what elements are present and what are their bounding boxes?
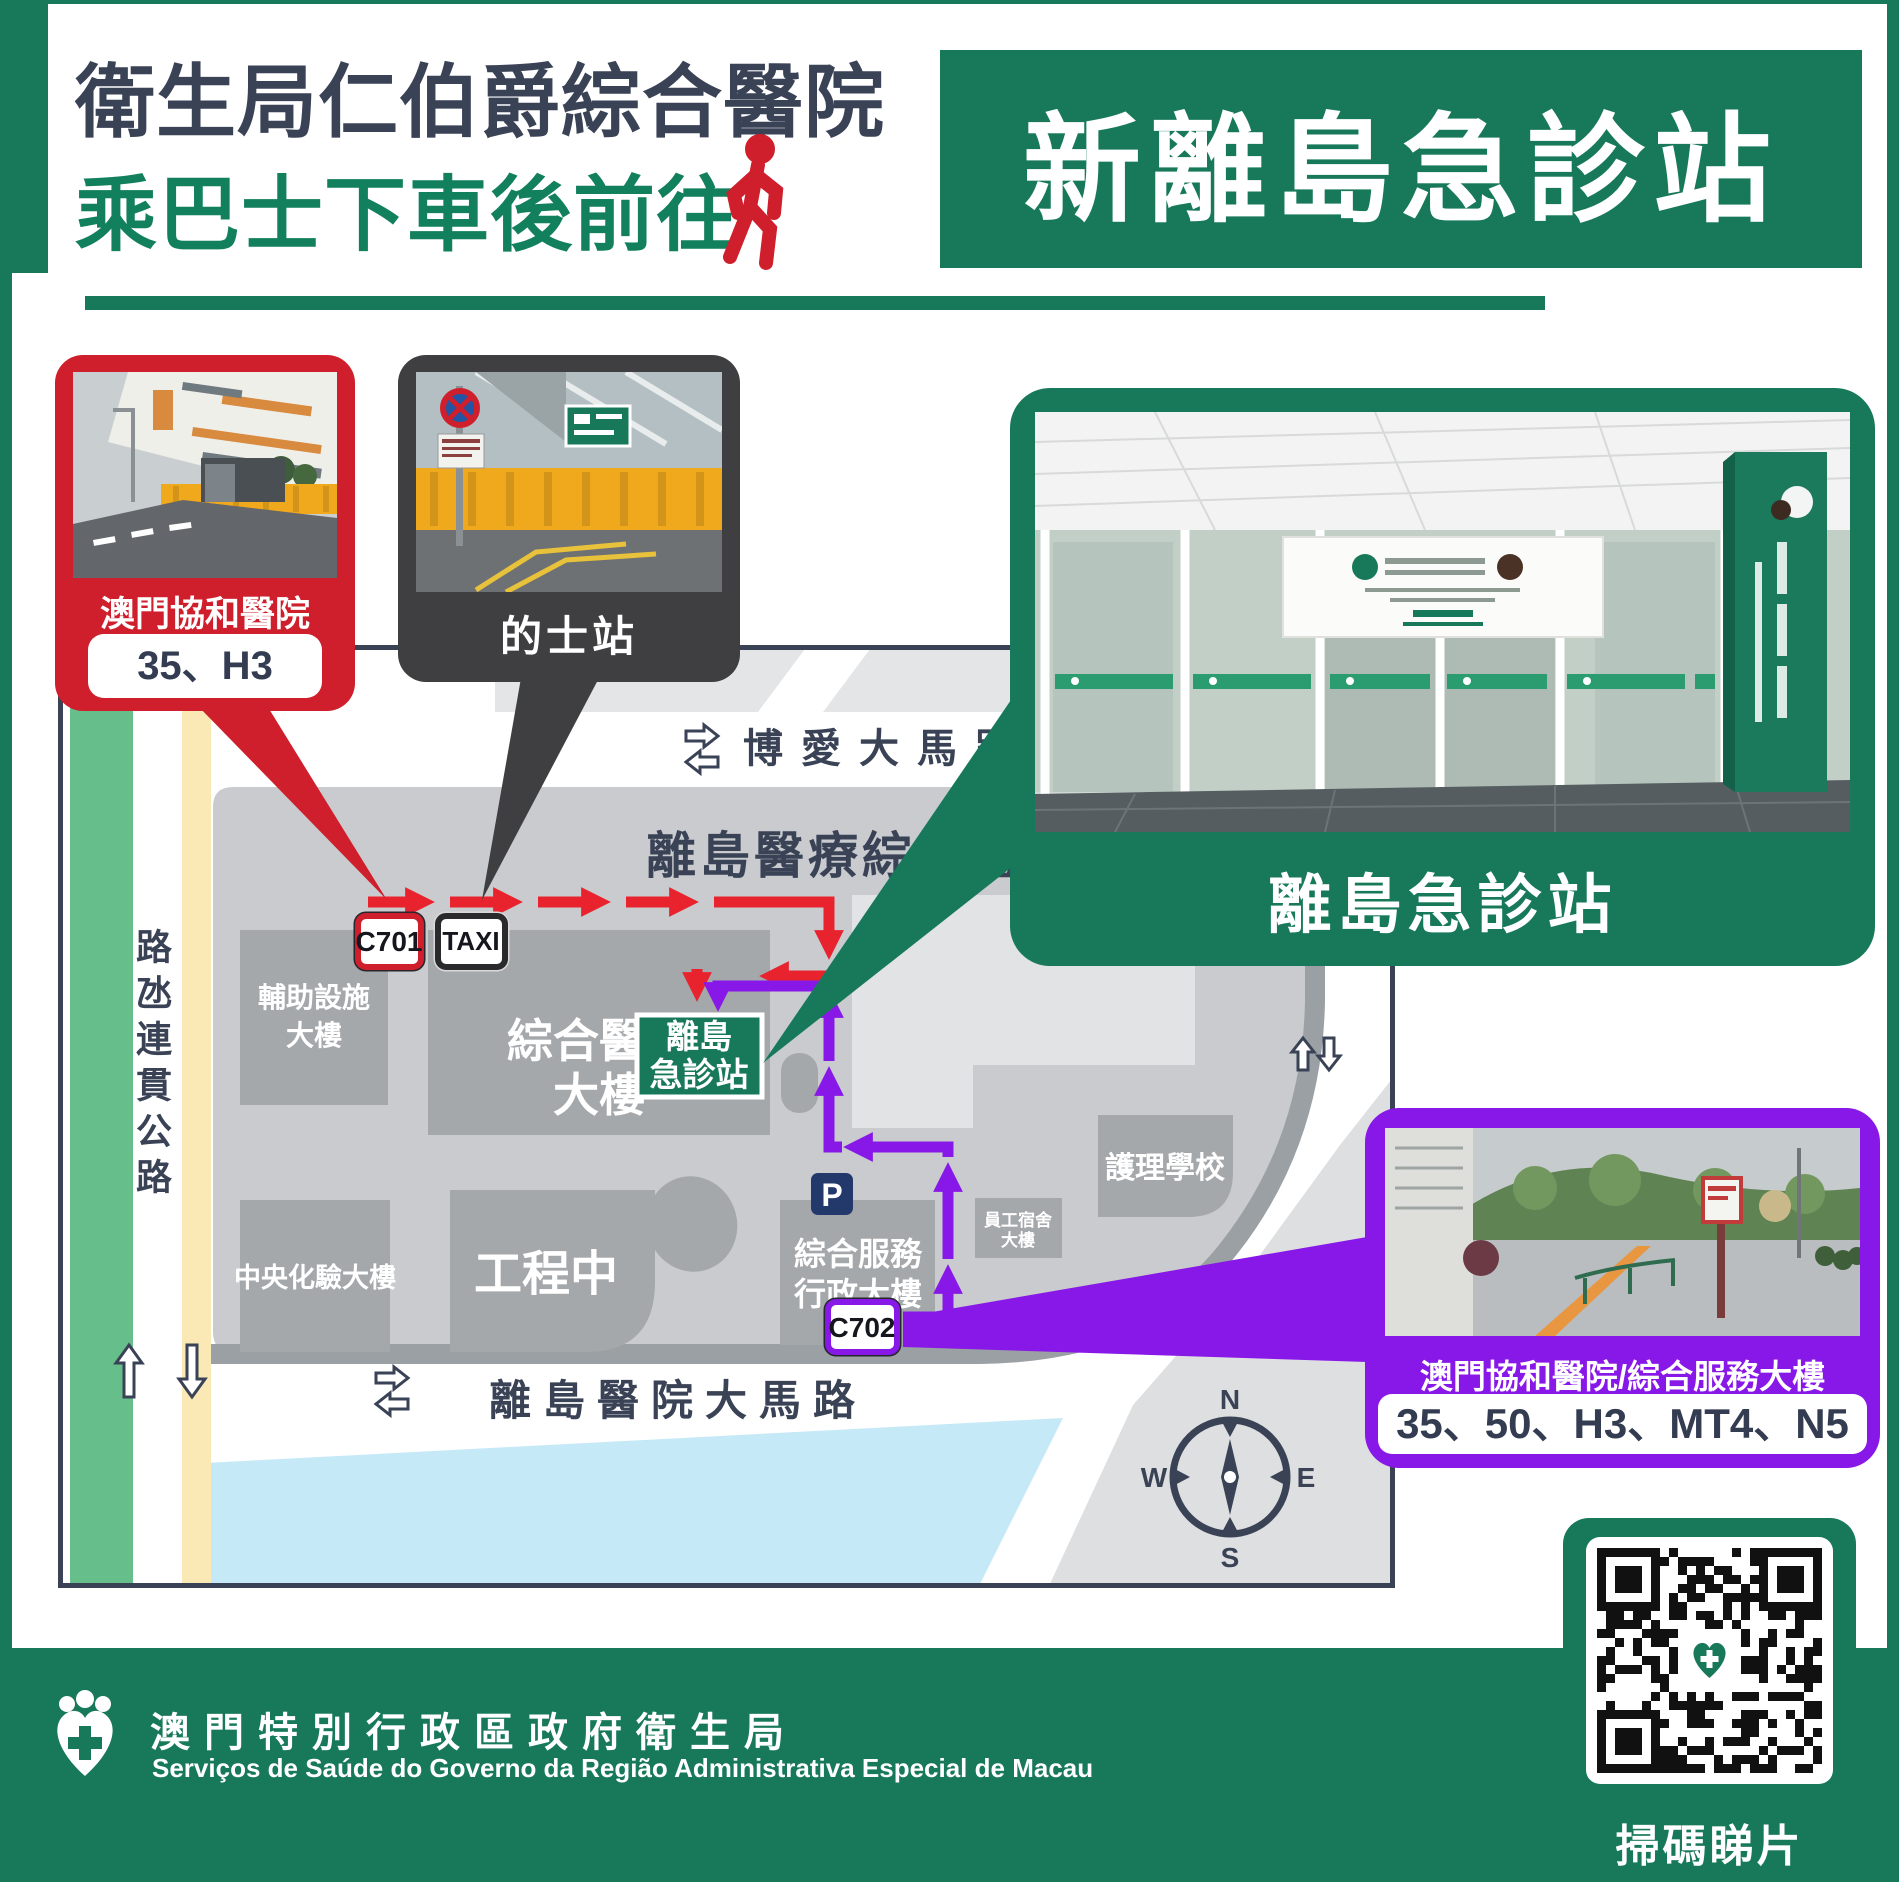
stop-badge-taxi: TAXI (435, 913, 508, 970)
purple-bus-stop-callout: 澳門協和醫院/綜合服務大樓 35、50、H3、MT4、N5 (1365, 1108, 1880, 1468)
stop-label-c702: C702 (829, 1312, 896, 1343)
taxi-callout-label: 的士站 (398, 603, 740, 664)
purple-callout-routes-pill: 35、50、H3、MT4、N5 (1378, 1394, 1867, 1454)
red-callout-label: 澳門協和醫院 (55, 586, 355, 637)
road-north-label: 博愛大馬路 (743, 727, 1033, 771)
qr-code (1586, 1537, 1833, 1784)
qr-caption: 掃碼睇片 (1563, 1810, 1856, 1874)
header-divider (85, 296, 1545, 310)
header-badge-label: 新離島急診站 (1023, 74, 1779, 245)
emergency-box-line2: 急診站 (650, 1056, 749, 1093)
stop-label-c701: C701 (356, 926, 423, 957)
purple-bus-stop-photo (1385, 1128, 1860, 1336)
complex-title: 離島醫療綜合體 (646, 828, 1024, 884)
label-auxiliary-2: 大樓 (286, 1020, 342, 1051)
qr-code-image (1597, 1548, 1822, 1773)
footer-org-pt: Serviços de Saúde do Governo da Região A… (152, 1753, 1093, 1784)
building-pill-top (655, 940, 770, 968)
red-bus-stop-callout: 澳門協和醫院 35、H3 (55, 355, 355, 711)
stop-badge-c701: C701 (355, 913, 424, 970)
qr-panel: 掃碼睇片 (1563, 1518, 1856, 1878)
emergency-station-box: 離島 急診站 (637, 1015, 762, 1097)
stop-label-taxi: TAXI (442, 926, 499, 956)
highway-green-lane (70, 645, 133, 1588)
label-admin-1: 綜合服務 (794, 1236, 923, 1272)
taxi-photo (416, 372, 722, 592)
road-west-label: 路氹連貫公路 (125, 928, 177, 1204)
parking-badge: P (811, 1173, 853, 1215)
road-south-label: 離島醫院大馬路 (489, 1377, 867, 1424)
purple-callout-label: 澳門協和醫院/綜合服務大樓 (1365, 1350, 1880, 1398)
emergency-photo (1035, 412, 1850, 832)
compass-n: N (1220, 1384, 1240, 1415)
compass-w: W (1141, 1462, 1168, 1493)
label-central-lab: 中央化驗大樓 (234, 1262, 396, 1293)
parking-letter: P (821, 1177, 842, 1213)
emergency-callout: 離島急診站 (1010, 388, 1875, 966)
compass-e: E (1297, 1462, 1316, 1493)
footer-org-zh: 澳門特別行政區政府衛生局 (150, 1700, 798, 1758)
red-callout-routes: 35、H3 (137, 644, 273, 688)
label-nursing-school: 護理學校 (1105, 1151, 1225, 1185)
label-under-construction: 工程中 (474, 1248, 618, 1301)
purple-callout-routes: 35、50、H3、MT4、N5 (1396, 1400, 1849, 1447)
stop-badge-c702: C702 (825, 1299, 900, 1355)
label-general-2: 大樓 (553, 1069, 645, 1121)
label-auxiliary-1: 輔助設施 (258, 981, 370, 1013)
emergency-box-line1: 離島 (666, 1018, 732, 1055)
red-callout-routes-pill: 35、H3 (88, 634, 322, 698)
label-dorm-2: 大樓 (1001, 1230, 1035, 1250)
emergency-callout-label: 離島急診站 (1010, 854, 1875, 946)
red-bus-stop-photo (73, 372, 337, 578)
walking-person-icon (714, 133, 798, 271)
label-dorm-1: 員工宿舍 (983, 1210, 1052, 1230)
highway-yellow-lane (182, 645, 211, 1588)
header-badge: 新離島急診站 (940, 50, 1862, 268)
taxi-callout: 的士站 (398, 355, 740, 682)
page-title-line2: 乘巴士下車後前往 (75, 148, 739, 267)
compass-s: S (1221, 1542, 1240, 1573)
building-pill-side (781, 1053, 818, 1113)
health-bureau-logo (50, 1688, 120, 1780)
